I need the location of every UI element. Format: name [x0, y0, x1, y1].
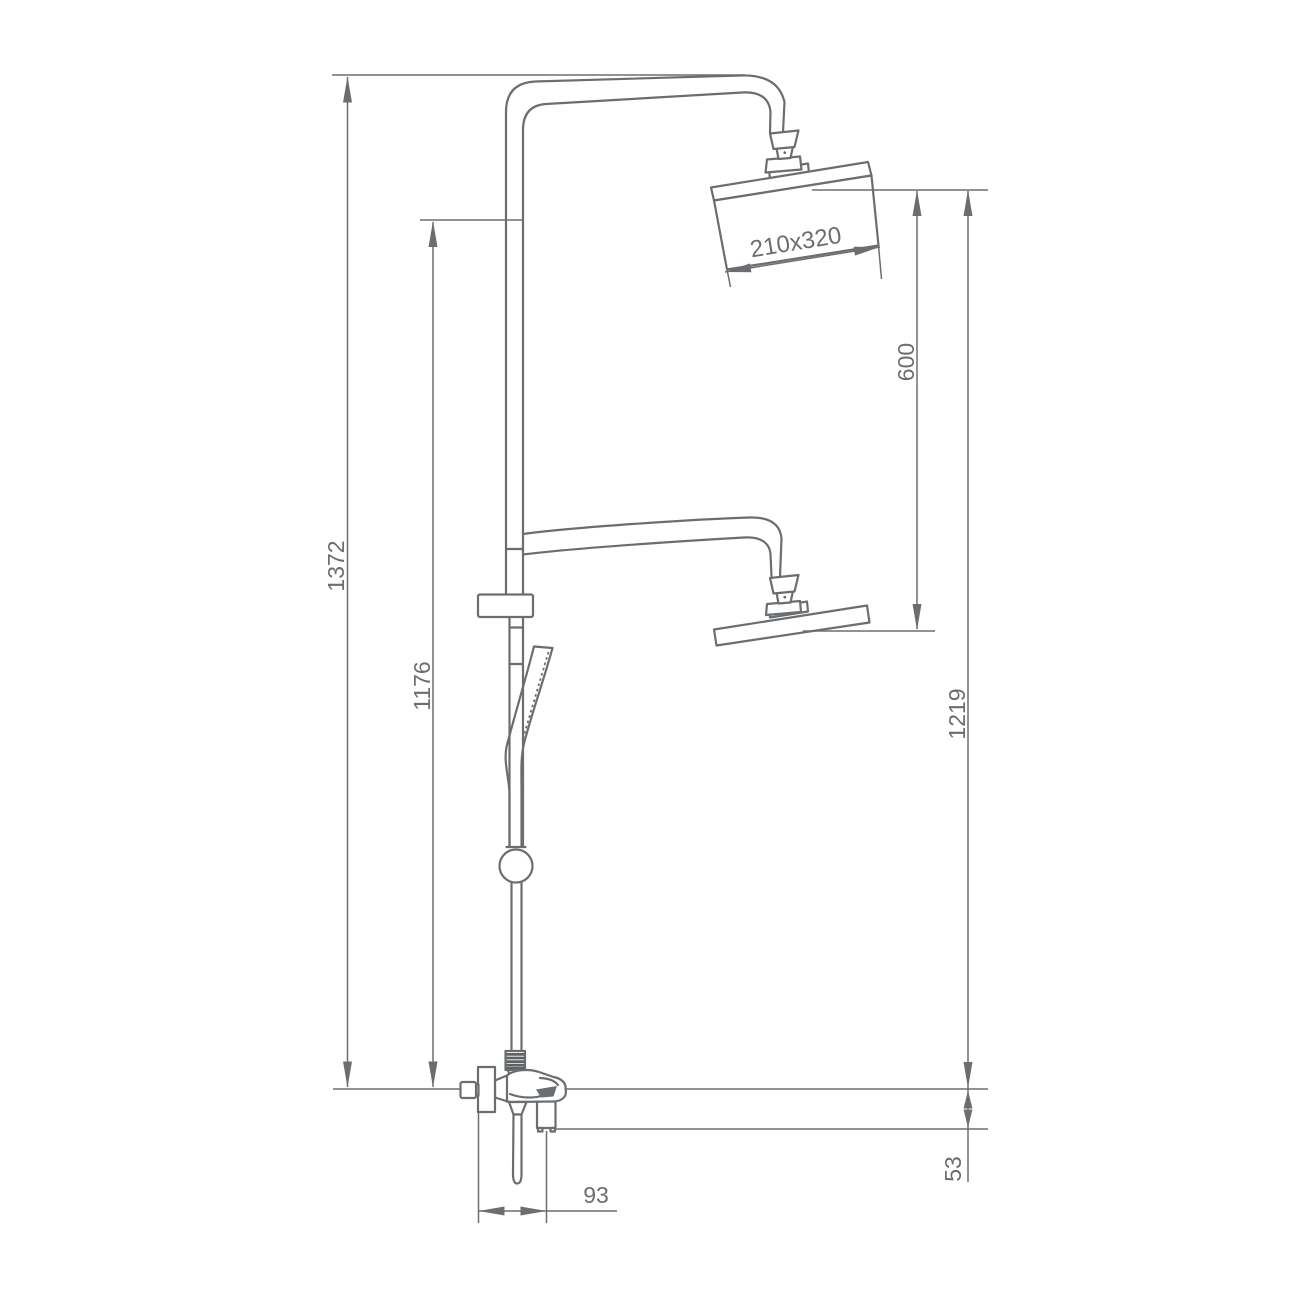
arrow-right-icon — [854, 247, 880, 256]
dim-label-head-spacing: 600 — [893, 343, 919, 381]
dim-head-spacing: 600 — [893, 190, 922, 630]
arrow-down-icon — [913, 604, 922, 630]
dim-label-riser-height: 1176 — [409, 661, 435, 710]
arrow-down-icon — [964, 1062, 973, 1088]
arrow-up-icon — [429, 221, 438, 247]
arrow-up-small-icon — [964, 1091, 973, 1109]
arrow-left-icon — [479, 1207, 505, 1216]
riser-pipe-outer-edge — [506, 75, 785, 594]
arrow-up-icon — [964, 190, 973, 216]
arrow-right-icon — [521, 1207, 547, 1216]
wall-mixer — [461, 1067, 566, 1184]
dim-label-overhead-to-mounting: 1219 — [944, 688, 970, 739]
lower-shower-head — [714, 575, 870, 646]
lower-arm-lower-edge — [523, 537, 772, 576]
shower-column-dimension-drawing: 1372 1176 210x320 600 1219 53 — [0, 0, 1300, 1300]
overhead-ball-joint-pin — [783, 151, 786, 154]
slide-bracket — [478, 595, 533, 618]
arrow-down-icon — [343, 1062, 352, 1088]
lower-riser-tube — [506, 883, 526, 1078]
spout-foot-left — [538, 1128, 543, 1132]
lower-shower-arm — [523, 517, 782, 576]
hose-connector-ball — [500, 850, 533, 883]
technical-drawing-page: 1372 1176 210x320 600 1219 53 — [0, 0, 1300, 1300]
arrow-down-icon — [429, 1062, 438, 1088]
arrow-up-icon — [343, 77, 352, 103]
dim-label-overall-height: 1372 — [323, 540, 349, 591]
mounting-reference-lines — [333, 1089, 988, 1129]
hand-shower-nozzle-texture — [523, 652, 549, 740]
dim-extension-head-right — [879, 246, 882, 280]
mixer-handle-neck — [509, 1102, 527, 1115]
arrow-up-icon — [913, 190, 922, 216]
overhead-ball-joint-nut — [770, 131, 799, 150]
mixer-wall-flange — [478, 1067, 495, 1112]
arrow-down-small-icon — [964, 1110, 973, 1128]
dim-overall-height: 1372 — [323, 75, 745, 1088]
temperature-knob — [461, 1082, 477, 1098]
spout-foot-right — [551, 1128, 556, 1132]
dim-overhead-to-mounting: 1219 53 — [940, 190, 973, 1182]
lower-ball-joint-nut — [770, 575, 799, 594]
mixer-lever-handle — [513, 1115, 522, 1184]
hand-shower-top-edge — [534, 647, 553, 649]
dim-label-spout-reach: 93 — [583, 1182, 609, 1208]
lower-ball-joint-pin — [783, 596, 786, 599]
dim-label-spout-drop: 53 — [940, 1156, 966, 1182]
lower-arm-upper-edge — [523, 517, 782, 576]
